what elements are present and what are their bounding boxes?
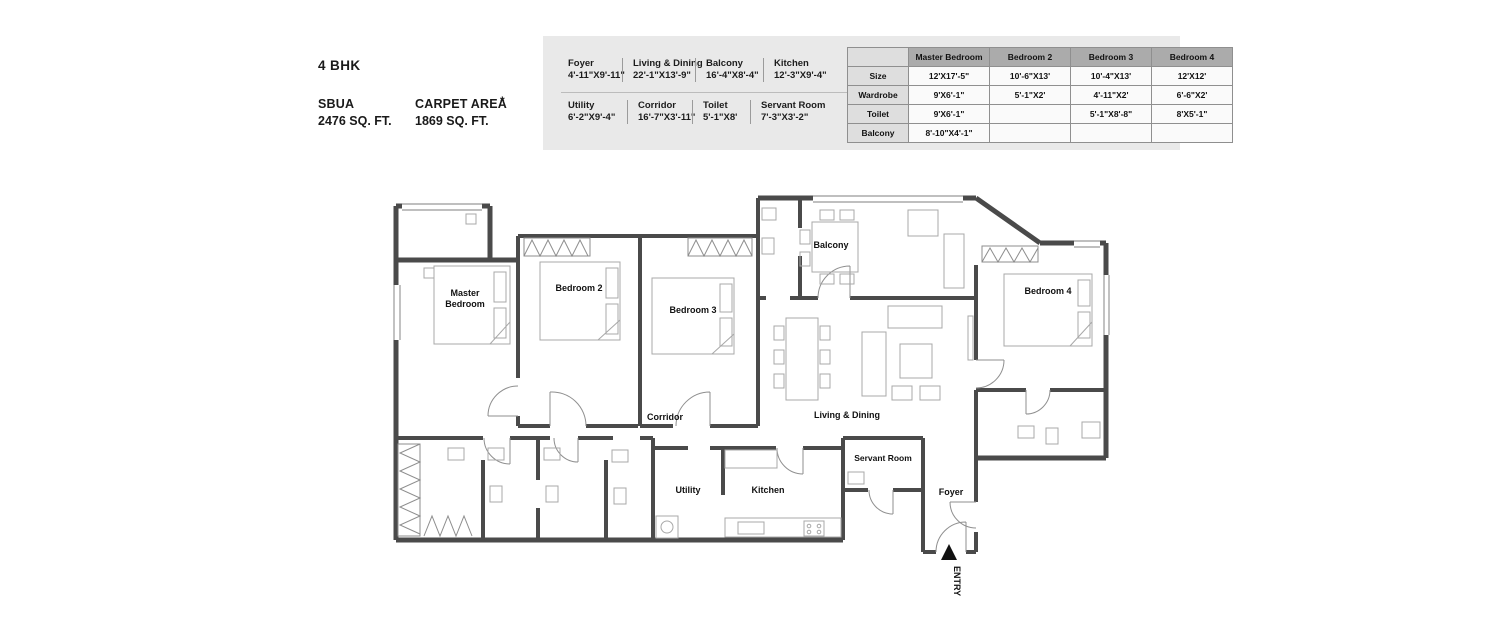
entry-marker: ENTRY: [941, 544, 962, 596]
sofa-set: [862, 306, 973, 400]
dim-foyer: Foyer 4'-11"X9'-11": [568, 58, 622, 82]
dim-balcony-size: 16'-4"X8'-4": [706, 70, 763, 82]
label-master-bedroom-line1: Master: [450, 288, 480, 298]
label-bedroom3: Bedroom 3: [669, 305, 716, 315]
label-balcony: Balcony: [813, 240, 848, 250]
col-bedroom-2: Bedroom 2: [990, 48, 1071, 67]
dim-living-dining-size: 22'-1"X13'-9": [633, 70, 695, 82]
dim-toilet: Toilet 5'-1"X8': [692, 100, 750, 124]
label-entry: ENTRY: [952, 566, 962, 596]
page-title: 4 BHK: [318, 58, 361, 73]
wardrobe-bedroom4: 6'-6"X2': [1152, 86, 1233, 105]
dim-living-dining-name: Living & Dining: [633, 58, 695, 70]
label-servant-room: Servant Room: [854, 453, 912, 463]
dimensions-row-2: Utility 6'-2"X9'-4" Corridor 16'-7"X3'-1…: [568, 100, 851, 124]
row-label-toilet: Toilet: [848, 105, 909, 124]
dim-kitchen-name: Kitchen: [774, 58, 854, 70]
doors: [484, 266, 1050, 552]
toilet-bedroom4: 8'X5'-1": [1152, 105, 1233, 124]
dim-utility-size: 6'-2"X9'-4": [568, 112, 627, 124]
bedroom-dimensions-table: Master Bedroom Bedroom 2 Bedroom 3 Bedro…: [847, 47, 1233, 143]
panel-divider: [561, 92, 853, 93]
size-master: 12'X17'-5": [909, 67, 990, 86]
carpet-area-label: CARPET AREA: [415, 96, 507, 113]
dim-corridor: Corridor 16'-7"X3'-11": [627, 100, 692, 124]
carpet-area-block: CARPET AREA 1869 SQ. FT.: [415, 96, 507, 130]
table-row-balcony: Balcony 8'-10"X4'-1": [848, 124, 1233, 143]
dim-servant-room-name: Servant Room: [761, 100, 851, 112]
table-header-row: Master Bedroom Bedroom 2 Bedroom 3 Bedro…: [848, 48, 1233, 67]
dim-utility-name: Utility: [568, 100, 627, 112]
size-bedroom2: 10'-6"X13': [990, 67, 1071, 86]
size-bedroom3: 10'-4"X13': [1071, 67, 1152, 86]
carpet-area-value: 1869 SQ. FT.: [415, 113, 507, 130]
table-row-toilet: Toilet 9'X6'-1" 5'-1"X8'-8" 8'X5'-1": [848, 105, 1233, 124]
entry-arrow-icon: [941, 544, 957, 560]
dim-balcony-name: Balcony: [706, 58, 763, 70]
balcony-bedroom4: [1152, 124, 1233, 143]
toilet-bedroom2: [990, 105, 1071, 124]
dim-foyer-name: Foyer: [568, 58, 622, 70]
label-bedroom4: Bedroom 4: [1024, 286, 1071, 296]
label-corridor: Corridor: [647, 412, 683, 422]
bedroom4-bed: [1004, 274, 1092, 346]
wardrobe-bedroom3: 4'-11"X2': [1071, 86, 1152, 105]
label-foyer: Foyer: [939, 487, 964, 497]
balcony-bedroom2: [990, 124, 1071, 143]
dim-utility: Utility 6'-2"X9'-4": [568, 100, 627, 124]
toilet-master: 9'X6'-1": [909, 105, 990, 124]
living-dining-table: [774, 318, 830, 400]
dim-servant-room-size: 7'-3"X3'-2": [761, 112, 851, 124]
sbua-value: 2476 SQ. FT.: [318, 113, 392, 130]
dim-toilet-size: 5'-1"X8': [703, 112, 750, 124]
bedroom3-bed: [652, 278, 734, 354]
utility-washer: [656, 516, 678, 538]
table-row-wardrobe: Wardrobe 9'X6'-1" 5'-1"X2' 4'-11"X2' 6'-…: [848, 86, 1233, 105]
wardrobe-bedroom2: 5'-1"X2': [990, 86, 1071, 105]
dimensions-row-1: Foyer 4'-11"X9'-11" Living & Dining 22'-…: [568, 58, 854, 82]
label-bedroom2: Bedroom 2: [555, 283, 602, 293]
dim-corridor-size: 16'-7"X3'-11": [638, 112, 692, 124]
label-living-dining: Living & Dining: [814, 410, 880, 420]
col-master-bedroom: Master Bedroom: [909, 48, 990, 67]
dim-toilet-name: Toilet: [703, 100, 750, 112]
row-label-wardrobe: Wardrobe: [848, 86, 909, 105]
floor-plan: Master Bedroom Bedroom 2 Bedroom 3 Bedro…: [388, 190, 1133, 615]
dim-kitchen-size: 12'-3"X9'-4": [774, 70, 854, 82]
dim-corridor-name: Corridor: [638, 100, 692, 112]
size-bedroom4: 12'X12': [1152, 67, 1233, 86]
label-master-bedroom-line2: Bedroom: [445, 299, 485, 309]
sbua-label: SBUA: [318, 96, 392, 113]
row-label-size: Size: [848, 67, 909, 86]
balcony-master: 8'-10"X4'-1": [909, 124, 990, 143]
row-label-balcony: Balcony: [848, 124, 909, 143]
sbua-block: SBUA 2476 SQ. FT.: [318, 96, 392, 130]
dim-balcony: Balcony 16'-4"X8'-4": [695, 58, 763, 82]
dim-living-dining: Living & Dining 22'-1"X13'-9": [622, 58, 695, 82]
dim-servant-room: Servant Room 7'-3"X3'-2": [750, 100, 851, 124]
carpet-area-asterisk: *: [500, 94, 505, 108]
table-row-size: Size 12'X17'-5" 10'-6"X13' 10'-4"X13' 12…: [848, 67, 1233, 86]
col-bedroom-4: Bedroom 4: [1152, 48, 1233, 67]
balcony-bedroom3: [1071, 124, 1152, 143]
col-bedroom-3: Bedroom 3: [1071, 48, 1152, 67]
toilet-bedroom3: 5'-1"X8'-8": [1071, 105, 1152, 124]
wardrobe-master: 9'X6'-1": [909, 86, 990, 105]
dim-foyer-size: 4'-11"X9'-11": [568, 70, 622, 82]
dim-kitchen: Kitchen 12'-3"X9'-4": [763, 58, 854, 82]
label-kitchen: Kitchen: [751, 485, 784, 495]
label-utility: Utility: [675, 485, 700, 495]
bedroom2-bed: [540, 262, 620, 340]
table-corner-cell: [848, 48, 909, 67]
